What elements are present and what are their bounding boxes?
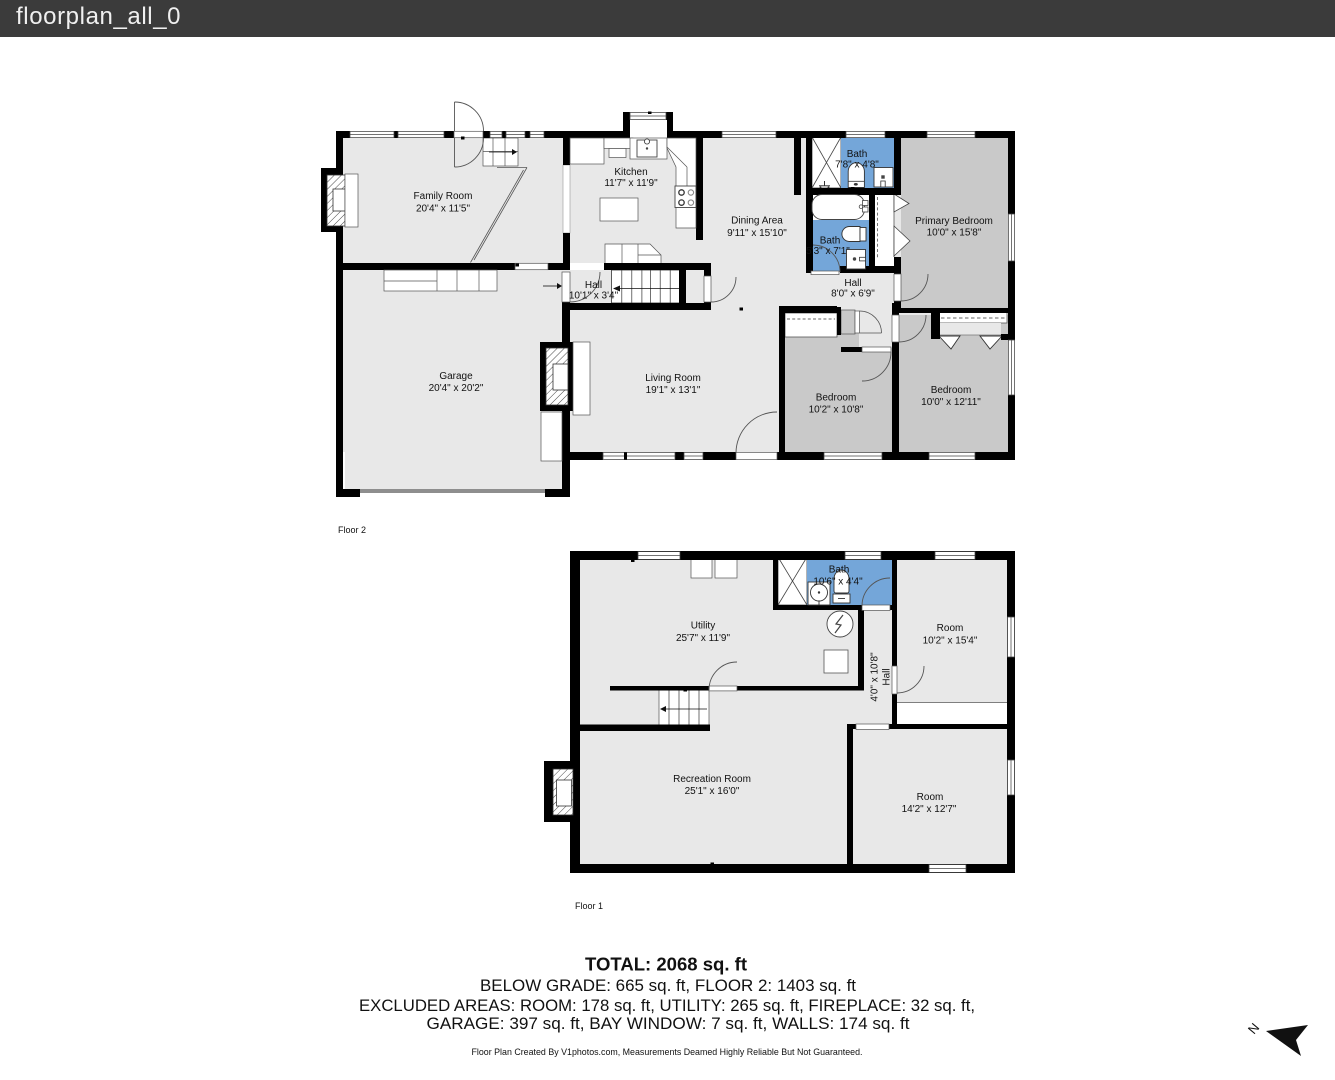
svg-text:20'4" x 11'5": 20'4" x 11'5"	[416, 204, 471, 215]
svg-text:14'2" x 12'7": 14'2" x 12'7"	[902, 804, 957, 815]
svg-text:Dining Area: Dining Area	[731, 216, 783, 227]
svg-text:20'4" x 20'2": 20'4" x 20'2"	[429, 383, 484, 394]
svg-text:Recreation Room: Recreation Room	[673, 774, 751, 785]
svg-text:Floor 1: Floor 1	[575, 901, 603, 911]
svg-text:7'8" x 4'8": 7'8" x 4'8"	[835, 160, 879, 171]
svg-text:Bath: Bath	[829, 565, 850, 576]
svg-text:Kitchen: Kitchen	[614, 167, 647, 178]
svg-text:10'0" x 15'8": 10'0" x 15'8"	[927, 228, 982, 239]
svg-text:Floor 2: Floor 2	[338, 525, 366, 535]
svg-text:4'0" x 10'8": 4'0" x 10'8"	[870, 652, 881, 702]
svg-text:Room: Room	[917, 792, 944, 803]
svg-text:Room: Room	[937, 623, 964, 634]
svg-text:10'2" x 15'4": 10'2" x 15'4"	[923, 636, 978, 647]
svg-text:10'0" x 12'11": 10'0" x 12'11"	[921, 397, 981, 408]
svg-text:9'11" x 15'10": 9'11" x 15'10"	[727, 228, 787, 239]
svg-text:N: N	[1245, 1020, 1263, 1037]
svg-text:8'0" x 6'9": 8'0" x 6'9"	[831, 289, 875, 300]
svg-text:Primary Bedroom: Primary Bedroom	[915, 216, 993, 227]
svg-text:10'1" x 3'4": 10'1" x 3'4"	[569, 291, 619, 302]
svg-text:10'2" x 10'8": 10'2" x 10'8"	[809, 405, 864, 416]
svg-text:25'1" x 16'0": 25'1" x 16'0"	[685, 786, 740, 797]
svg-text:Living Room: Living Room	[645, 373, 701, 384]
svg-text:GARAGE: 397 sq. ft, BAY WINDOW: GARAGE: 397 sq. ft, BAY WINDOW: 7 sq. ft…	[427, 1014, 910, 1033]
svg-text:Bath: Bath	[847, 149, 868, 160]
svg-text:Utility: Utility	[691, 621, 715, 632]
svg-text:Garage: Garage	[439, 371, 473, 382]
svg-text:Hall: Hall	[585, 280, 602, 291]
svg-text:Hall: Hall	[882, 668, 893, 685]
svg-text:Floor Plan Created By V1photos: Floor Plan Created By V1photos.com, Meas…	[472, 1047, 863, 1058]
svg-text:5'3" x 7'1": 5'3" x 7'1"	[806, 246, 850, 257]
svg-text:TOTAL: 2068 sq. ft: TOTAL: 2068 sq. ft	[585, 955, 747, 975]
svg-text:Bedroom: Bedroom	[816, 393, 857, 404]
svg-text:Family Room: Family Room	[414, 191, 473, 202]
svg-text:11'7" x 11'9": 11'7" x 11'9"	[604, 178, 658, 189]
svg-text:BELOW GRADE: 665 sq. ft, FLOOR: BELOW GRADE: 665 sq. ft, FLOOR 2: 1403 s…	[480, 976, 856, 995]
svg-text:EXCLUDED AREAS: ROOM: 178 sq.: EXCLUDED AREAS: ROOM: 178 sq. ft, UTILIT…	[359, 996, 975, 1015]
svg-text:Bedroom: Bedroom	[931, 385, 972, 396]
svg-text:Bath: Bath	[820, 236, 841, 247]
svg-text:19'1" x 13'1": 19'1" x 13'1"	[646, 385, 701, 396]
svg-text:10'6" x 4'4": 10'6" x 4'4"	[813, 577, 863, 588]
svg-text:Hall: Hall	[844, 278, 861, 289]
svg-text:25'7" x 11'9": 25'7" x 11'9"	[676, 633, 731, 644]
